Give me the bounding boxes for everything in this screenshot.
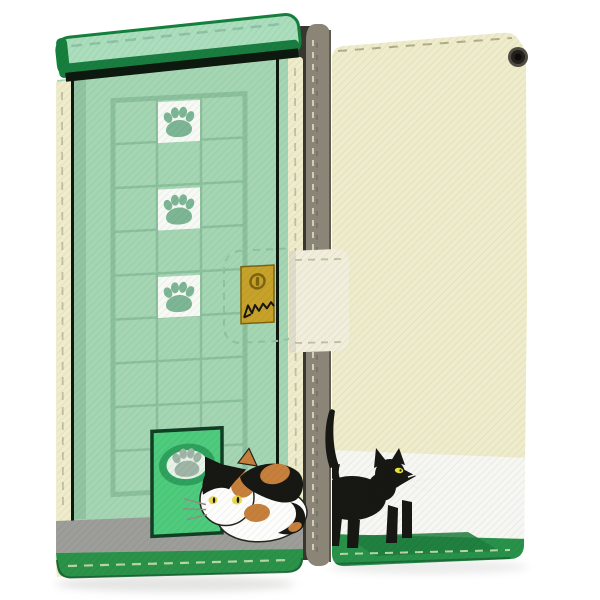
strap-texture [289,249,349,353]
back-panel-texture [332,33,527,566]
front-body-texture [57,57,303,578]
front-case-shadow [55,576,295,592]
product-photo-stage [0,0,600,600]
clasp-strap [289,249,349,353]
phone-case-illustration [0,0,600,600]
